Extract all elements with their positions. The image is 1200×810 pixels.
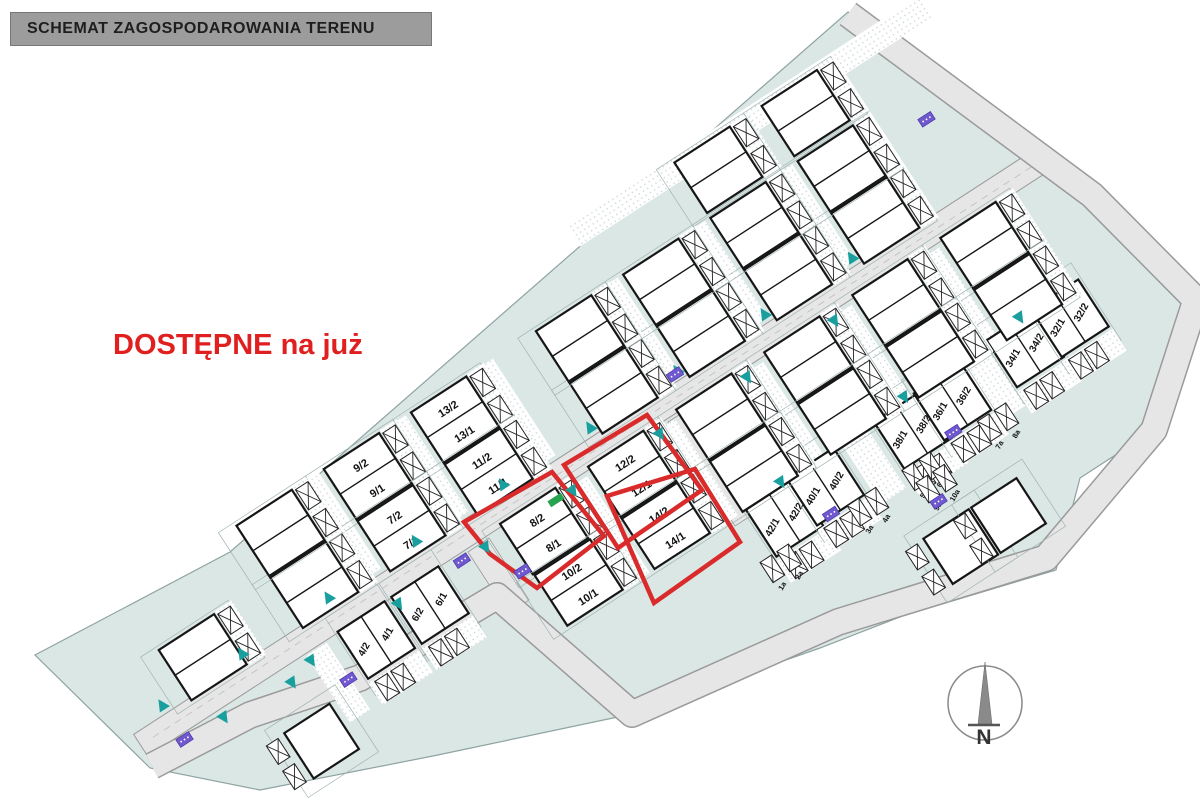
page-title: SCHEMAT ZAGOSPODAROWANIA TERENU (10, 12, 432, 46)
compass-north-label: N (976, 726, 991, 749)
availability-note: DOSTĘPNE na już (113, 329, 363, 362)
site-plan-svg: 9/29/17/27/113/213/111/211/18/28/110/210… (0, 0, 1200, 810)
site-plan-page: SCHEMAT ZAGOSPODAROWANIA TERENU DOSTĘPNE… (0, 0, 1200, 810)
compass: N (948, 662, 1022, 749)
